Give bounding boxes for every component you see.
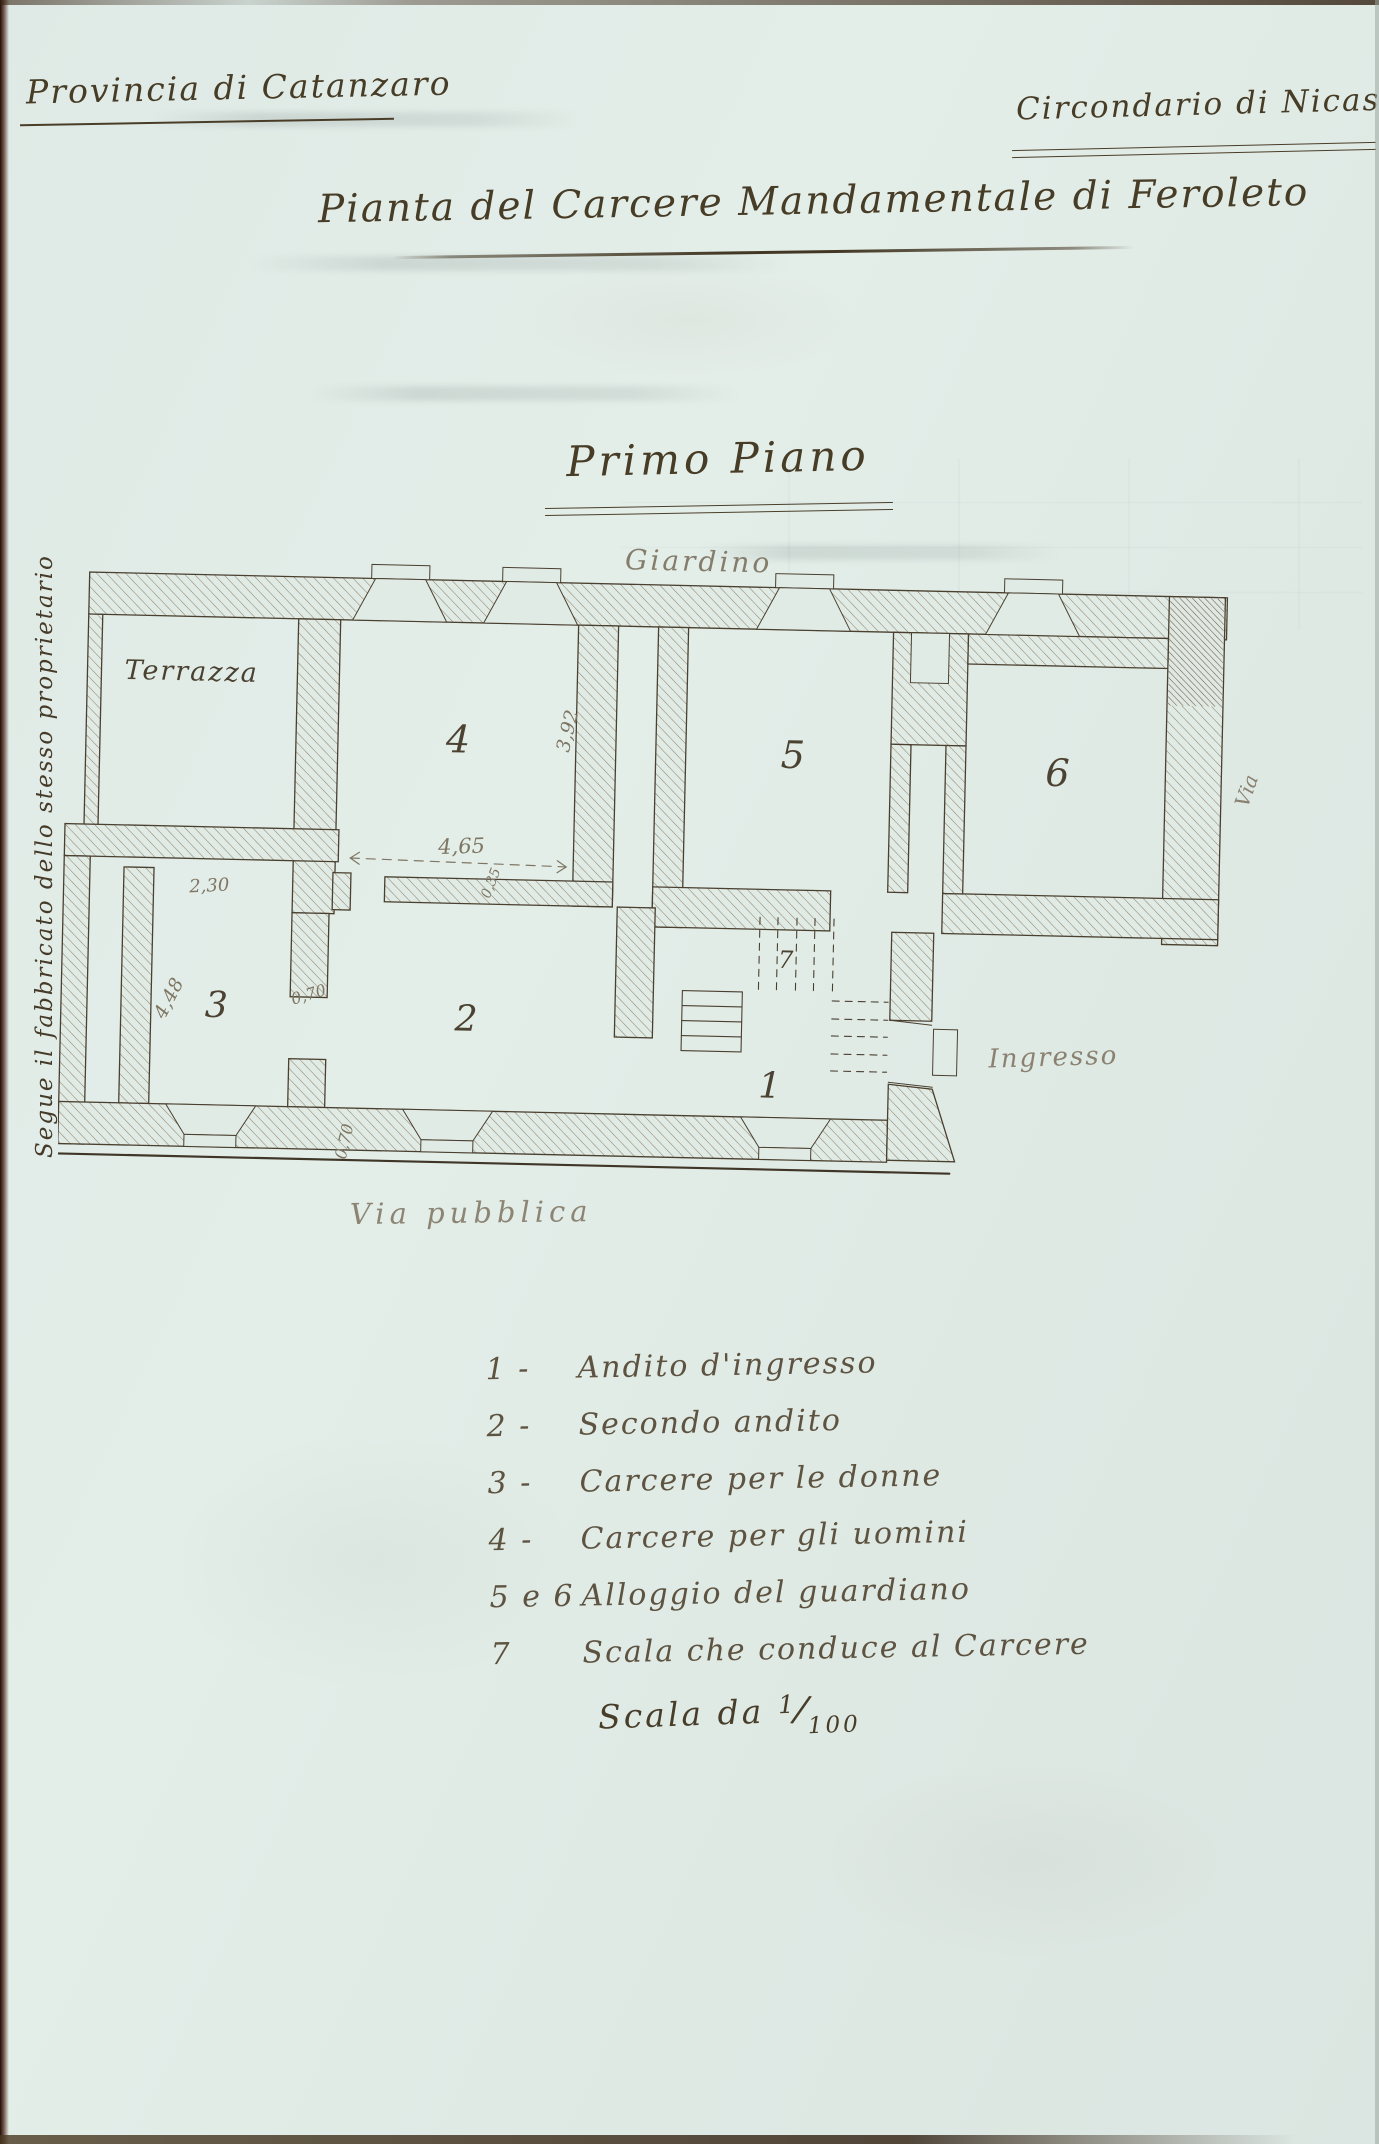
page-edge-top (0, 0, 1379, 5)
room-number-6: 6 (1045, 751, 1070, 796)
legend-item-number: 2 - (486, 1408, 579, 1445)
scanned-plan-page: Provincia di Catanzaro Circondario di Ni… (0, 0, 1379, 2144)
paper-stain (520, 260, 860, 380)
wall-room5-left (652, 627, 689, 928)
stair-dashed-tread (831, 1071, 887, 1072)
legend-item: 4 -Carcere per gli uomini (488, 1502, 1088, 1569)
adjacent-building-note: Segue il fabbricato dello stesso proprie… (32, 610, 58, 1158)
wall-annex-inner (119, 867, 154, 1104)
dim-room4-width: 4,65 (437, 834, 485, 859)
stair-dashed-tread (832, 1001, 888, 1002)
stair-tread (682, 1021, 742, 1022)
legend-item-number: 7 (490, 1636, 583, 1673)
legend-item-text: Andito d'ingresso (577, 1345, 878, 1385)
wall-room6-bottom (942, 893, 1219, 939)
wall-door-stub (332, 873, 351, 910)
wall-entrance-corner (887, 1084, 957, 1162)
wall-room6-top (968, 634, 1169, 669)
scale-fraction: 1/100 (778, 1687, 862, 1731)
window-sill (184, 1134, 236, 1147)
wall-room6-left (943, 746, 966, 894)
wall-terrace-left (84, 614, 103, 836)
terrace-label: Terrazza (124, 655, 259, 689)
legend-item-number: 5 e 6 (489, 1579, 582, 1616)
floor-subtitle: Primo Piano (548, 430, 889, 486)
stair-dashed-tread (832, 1019, 888, 1020)
window-sill (776, 574, 834, 589)
legend-item-text: Carcere per le donne (579, 1458, 942, 1499)
window-sill (1004, 579, 1062, 594)
wall-below-terrace (64, 824, 339, 862)
stair-tread (682, 1006, 742, 1007)
wall-right-lower (890, 932, 934, 1021)
district-underline (1012, 142, 1376, 158)
paper-stain (820, 1760, 1240, 1960)
window-sill (372, 564, 430, 579)
dim-room3-width: 2,30 (188, 875, 230, 898)
room-number-2: 2 (453, 998, 478, 1040)
wall-room4-right (572, 625, 618, 907)
window-sill (503, 567, 561, 582)
wall-corner-dense (1168, 598, 1224, 707)
district-label: Circondario di Nicastro (1016, 81, 1379, 128)
room-number-3: 3 (204, 985, 228, 1027)
bleed-through-text (310, 386, 740, 401)
room-number-7: 7 (778, 946, 795, 974)
legend-item: 3 -Carcere per le donne (487, 1445, 1087, 1512)
page-edge-left (0, 0, 9, 2144)
legend-item-number: 4 - (488, 1522, 581, 1559)
room-number-1: 1 (758, 1065, 782, 1107)
legend-item-text: Alloggio del guardiano (581, 1572, 971, 1614)
legend-item: 2 -Secondo andito (486, 1388, 1086, 1455)
wall-corridor-left (888, 744, 911, 892)
legend: 1 -Andito d'ingresso 2 -Secondo andito 3… (485, 1331, 1090, 1683)
legend-item: 5 e 6Alloggio del guardiano (489, 1559, 1089, 1626)
province-underline (20, 118, 394, 127)
wall-terrace-right (292, 619, 341, 914)
scale-denominator: 100 (807, 1711, 861, 1739)
legend-item-number: 3 - (487, 1465, 580, 1502)
legend-item-text: Secondo andito (578, 1403, 842, 1443)
side-street-label: Via (1230, 771, 1258, 810)
page-edge-bottom (0, 2135, 1296, 2144)
page-edge-right (1375, 0, 1379, 2144)
wall-room3-right-lower (288, 1059, 326, 1108)
room-number-5: 5 (780, 733, 805, 778)
legend-item-text: Scala che conduce al Carcere (582, 1627, 1090, 1671)
wall-stairhall-left (614, 907, 655, 1038)
stair-dashed-tread (831, 1054, 887, 1055)
title-underline (392, 246, 1134, 259)
stair-dashed-tread (832, 919, 834, 997)
garden-label: Giardino (625, 543, 773, 579)
dim-room3-depth: 4,48 (149, 974, 188, 1023)
legend-item: 1 -Andito d'ingresso (485, 1331, 1085, 1398)
floor-plan-svg: Giardino Terrazza 4 5 6 3 2 1 7 3,92 4,6… (58, 515, 1258, 1275)
wall-room5-bottom (652, 887, 831, 931)
legend-item: 7Scala che conduce al Carcere (490, 1616, 1090, 1683)
dimension-line (350, 858, 566, 867)
stair-dashed-tread (831, 1036, 887, 1037)
province-label: Provincia di Catanzaro (26, 64, 452, 112)
entrance-step (933, 1029, 958, 1076)
scale-note: Scala da1/100 (597, 1687, 862, 1737)
legend-item-number: 1 - (485, 1351, 578, 1388)
window-sill (759, 1147, 811, 1160)
stair-tread (681, 1036, 741, 1037)
page-title: Pianta del Carcere Mandamentale di Ferol… (318, 173, 1155, 233)
wall-notch (910, 633, 949, 684)
room-number-4: 4 (445, 717, 471, 762)
public-street-label: Via pubblica (350, 1194, 593, 1231)
scale-prefix: Scala da (597, 1692, 765, 1737)
wall-annex-outer (58, 856, 90, 1145)
legend-item-text: Carcere per gli uomini (580, 1515, 969, 1557)
window-sill (421, 1140, 473, 1153)
bleed-through-text (250, 256, 790, 271)
entrance-label: Ingresso (987, 1041, 1119, 1075)
